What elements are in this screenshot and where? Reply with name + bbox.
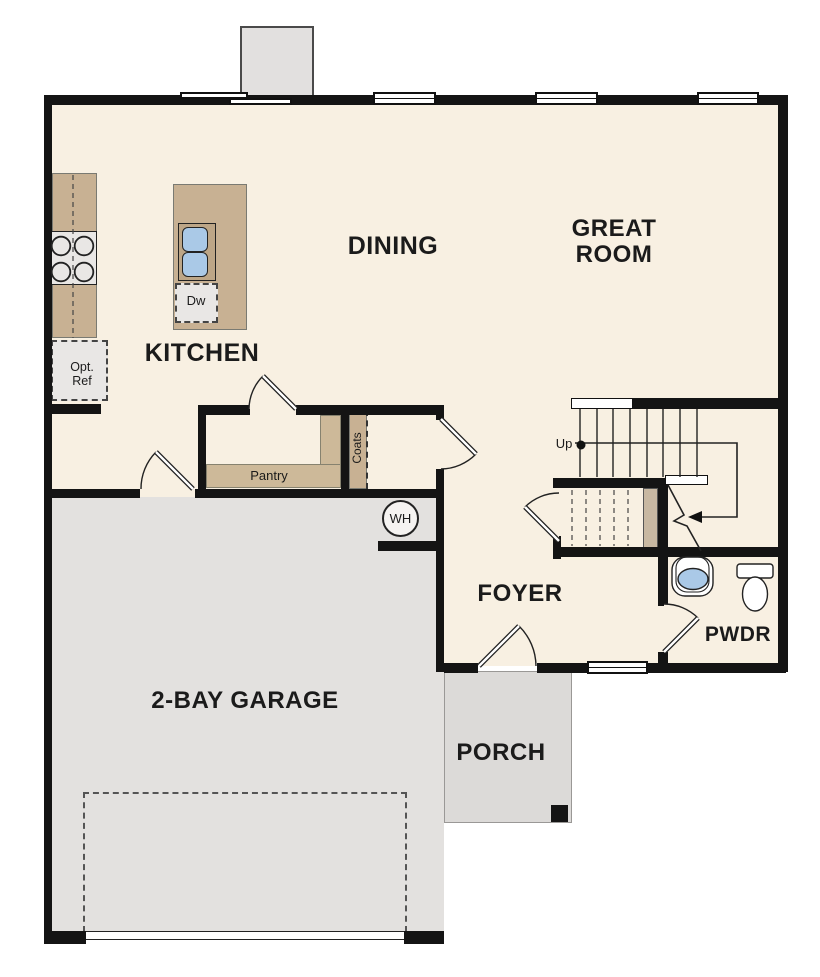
porch-post [551, 805, 568, 822]
water-heater-symbol: WH [382, 500, 419, 537]
stair-header-lower [665, 475, 708, 485]
wall-left [44, 95, 52, 944]
coats-closet-dashed-line [366, 410, 368, 489]
wall-kitchen-stub [44, 404, 101, 414]
fireplace-chimney [240, 26, 314, 97]
room-label-foyer: FOYER [477, 581, 562, 607]
pantry-shelf-right [320, 415, 341, 465]
wall-hall-top-right [296, 405, 444, 415]
wall-bottom-mid [553, 547, 786, 557]
understair-shelf [643, 488, 658, 549]
wall-garage-bottom-right [404, 931, 444, 944]
stair-header-upper [571, 398, 633, 409]
water-heater-label: WH [390, 511, 412, 526]
feature-label-coats: Coats [350, 432, 364, 463]
room-label-garage: 2-BAY GARAGE [151, 688, 338, 714]
wall-front-left [444, 663, 478, 673]
garage-door-dashed-area [83, 792, 407, 932]
wall-garage-bottom-left [44, 931, 86, 944]
room-label-kitchen: KITCHEN [145, 340, 260, 366]
stove-symbol [50, 231, 97, 285]
feature-label-dishwasher: Dw [187, 294, 206, 308]
wall-pantry-coats [341, 405, 349, 489]
wall-garage-top-left [44, 489, 140, 498]
wall-pantry-left [198, 405, 206, 498]
floor-plan: WH [0, 0, 820, 977]
feature-label-up: Up [556, 437, 573, 451]
window-dining [373, 92, 436, 105]
wall-right [778, 95, 788, 672]
garage-door [85, 931, 405, 940]
feature-label-opt-ref: Opt. Ref [70, 360, 94, 388]
room-label-great-room: GREAT ROOM [572, 216, 657, 268]
window-foyer [587, 661, 648, 674]
window-great-room-right [697, 92, 759, 105]
wall-hall-right-stub-bottom [436, 469, 444, 498]
sink-basin-bottom [182, 252, 208, 277]
wall-garage-right [436, 497, 444, 672]
feature-label-pantry: Pantry [250, 469, 288, 483]
room-label-dining: DINING [348, 233, 439, 259]
wall-stair-top [633, 398, 778, 409]
wall-front-right [537, 663, 786, 673]
window-great-room-left [535, 92, 598, 105]
wall-stair-vertical [658, 478, 668, 606]
wall-garage-top-right [195, 489, 444, 498]
wall-hall-right-stub-top [436, 405, 444, 420]
room-label-porch: PORCH [456, 740, 545, 766]
sink-basin-top [182, 227, 208, 252]
window-sliding-lower [229, 98, 292, 105]
room-label-powder: PWDR [705, 622, 771, 648]
wall-powder-door-stub [658, 652, 668, 663]
wall-water-heater-stub [378, 541, 444, 551]
wall-stair-mid [553, 478, 663, 488]
